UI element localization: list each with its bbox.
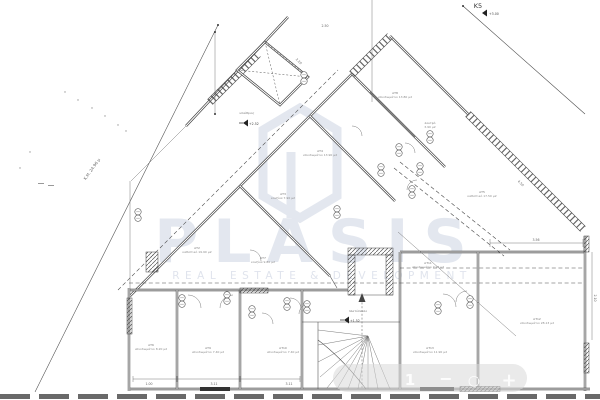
- room-area-label: καθιστικό 19.90 μ2: [182, 250, 211, 254]
- door-tag: [467, 296, 473, 309]
- dimension-text: 3.11: [285, 382, 292, 386]
- dimension-text: 3.56: [532, 238, 539, 242]
- page-indicator[interactable]: 1: [405, 371, 415, 389]
- door-tag: [396, 144, 402, 157]
- dimension-text: 4.50: [517, 179, 525, 187]
- room-area-label: υπνοδωμάτιο 7.95 μ2: [412, 265, 444, 269]
- zoom-reset-button[interactable]: ○: [468, 373, 480, 389]
- dashed-lines: [118, 70, 583, 336]
- room-area-label: υπνοδωμάτιο 13.90 μ2: [303, 153, 337, 157]
- room-area-label: κουζίνα 9.80 μ2: [251, 260, 275, 264]
- annotation-text: υπαίθριος: [240, 111, 255, 115]
- k5-level-text: +3.00: [489, 12, 499, 16]
- zoom-out-button[interactable]: −: [439, 369, 452, 388]
- door-tag: [304, 301, 310, 314]
- dimension-text: 3.11: [210, 382, 217, 386]
- level-text: +2.52: [249, 122, 259, 126]
- door-tag: [435, 302, 441, 315]
- zoom-in-button[interactable]: +: [501, 370, 516, 391]
- room-area-label: καθιστικό 17.50 μ2: [467, 194, 496, 198]
- stair-direction-arrow: [359, 293, 366, 302]
- door-tag: [409, 186, 415, 199]
- site-specks: [19, 91, 126, 186]
- door-tag: [284, 298, 290, 311]
- floorplan-canvas: PLASIS REAL ESTATE & DEVELOPMENT: [0, 0, 600, 400]
- floor-plan: PLASIS REAL ESTATE & DEVELOPMENT: [0, 0, 600, 400]
- dimension-text: 2.10: [593, 294, 597, 301]
- room-area-label: κουζίνα 7.90 μ2: [271, 196, 295, 200]
- k5-line: [463, 6, 585, 114]
- room-area-label: υπνοδωμάτιο 8.20 μ2: [135, 347, 167, 351]
- door-tag: [179, 295, 185, 308]
- k5-label: K5: [474, 2, 482, 10]
- room-area-label: υπνοδωμάτιο 11.90 μ2: [413, 350, 447, 354]
- room-area-label: υπνοδωμάτιο 13.80 μ2: [378, 95, 412, 99]
- room-area-label: 3.90 μ2: [424, 125, 436, 129]
- room-area-label: υπνοδωμάτιο 7.40 μ2: [267, 350, 299, 354]
- dimension-text: 2.20: [295, 57, 303, 65]
- door-tag: [417, 163, 423, 176]
- room-area-label: υπνοδωμάτιο 7.40 μ2: [192, 350, 224, 354]
- dimension-text: 1.00: [145, 382, 152, 386]
- door-tag: [135, 209, 141, 222]
- room-area-label: υπνοδωμάτιο 28.13 μ2: [520, 321, 554, 325]
- door-tag: [378, 164, 384, 177]
- viewer-zoom-pill: 1 − ○ +: [333, 364, 527, 392]
- dimension-text: 2.50: [321, 24, 328, 28]
- door-tag: [249, 306, 255, 319]
- annotation-text: πλατύσκαλο: [349, 309, 368, 313]
- watermark-tagline: REAL ESTATE & DEVELOPMENT: [172, 270, 472, 282]
- door-tag: [427, 131, 433, 144]
- skylight-shaft: [237, 42, 308, 105]
- boundary-length-label: Κ.Μ. 24.96 μ: [83, 157, 102, 181]
- level-text: +1.52: [350, 319, 360, 323]
